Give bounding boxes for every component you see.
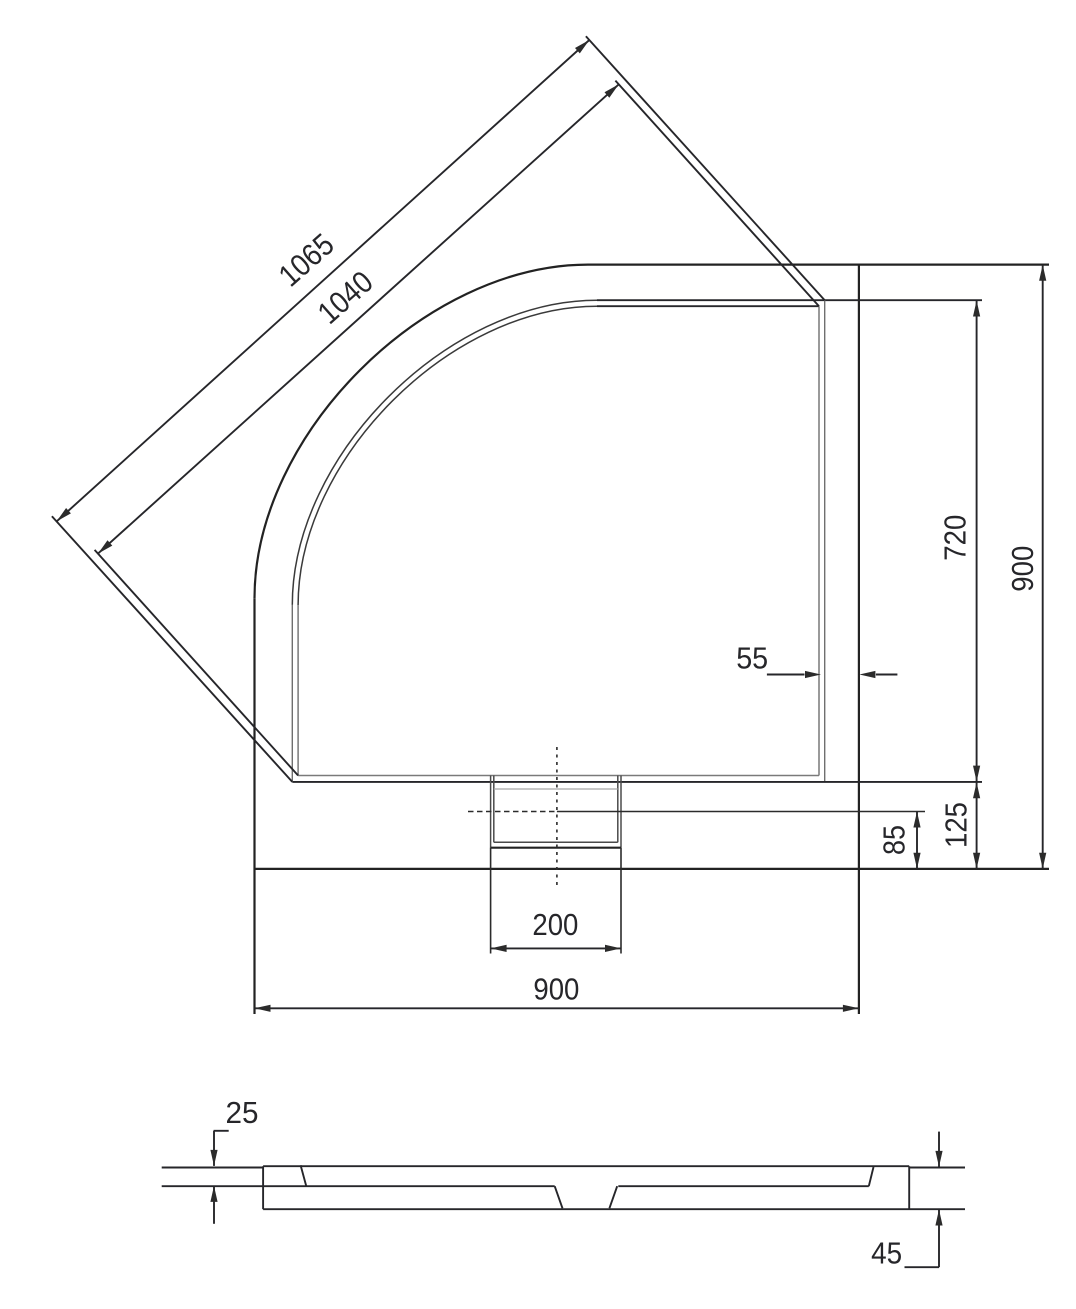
svg-text:45: 45	[871, 1236, 902, 1271]
svg-text:720: 720	[938, 515, 973, 561]
svg-text:125: 125	[939, 802, 974, 848]
svg-text:900: 900	[533, 972, 579, 1007]
svg-text:55: 55	[736, 641, 768, 676]
svg-text:25: 25	[226, 1095, 259, 1130]
svg-text:200: 200	[532, 907, 578, 942]
svg-text:85: 85	[877, 825, 912, 855]
svg-text:900: 900	[1005, 546, 1040, 592]
